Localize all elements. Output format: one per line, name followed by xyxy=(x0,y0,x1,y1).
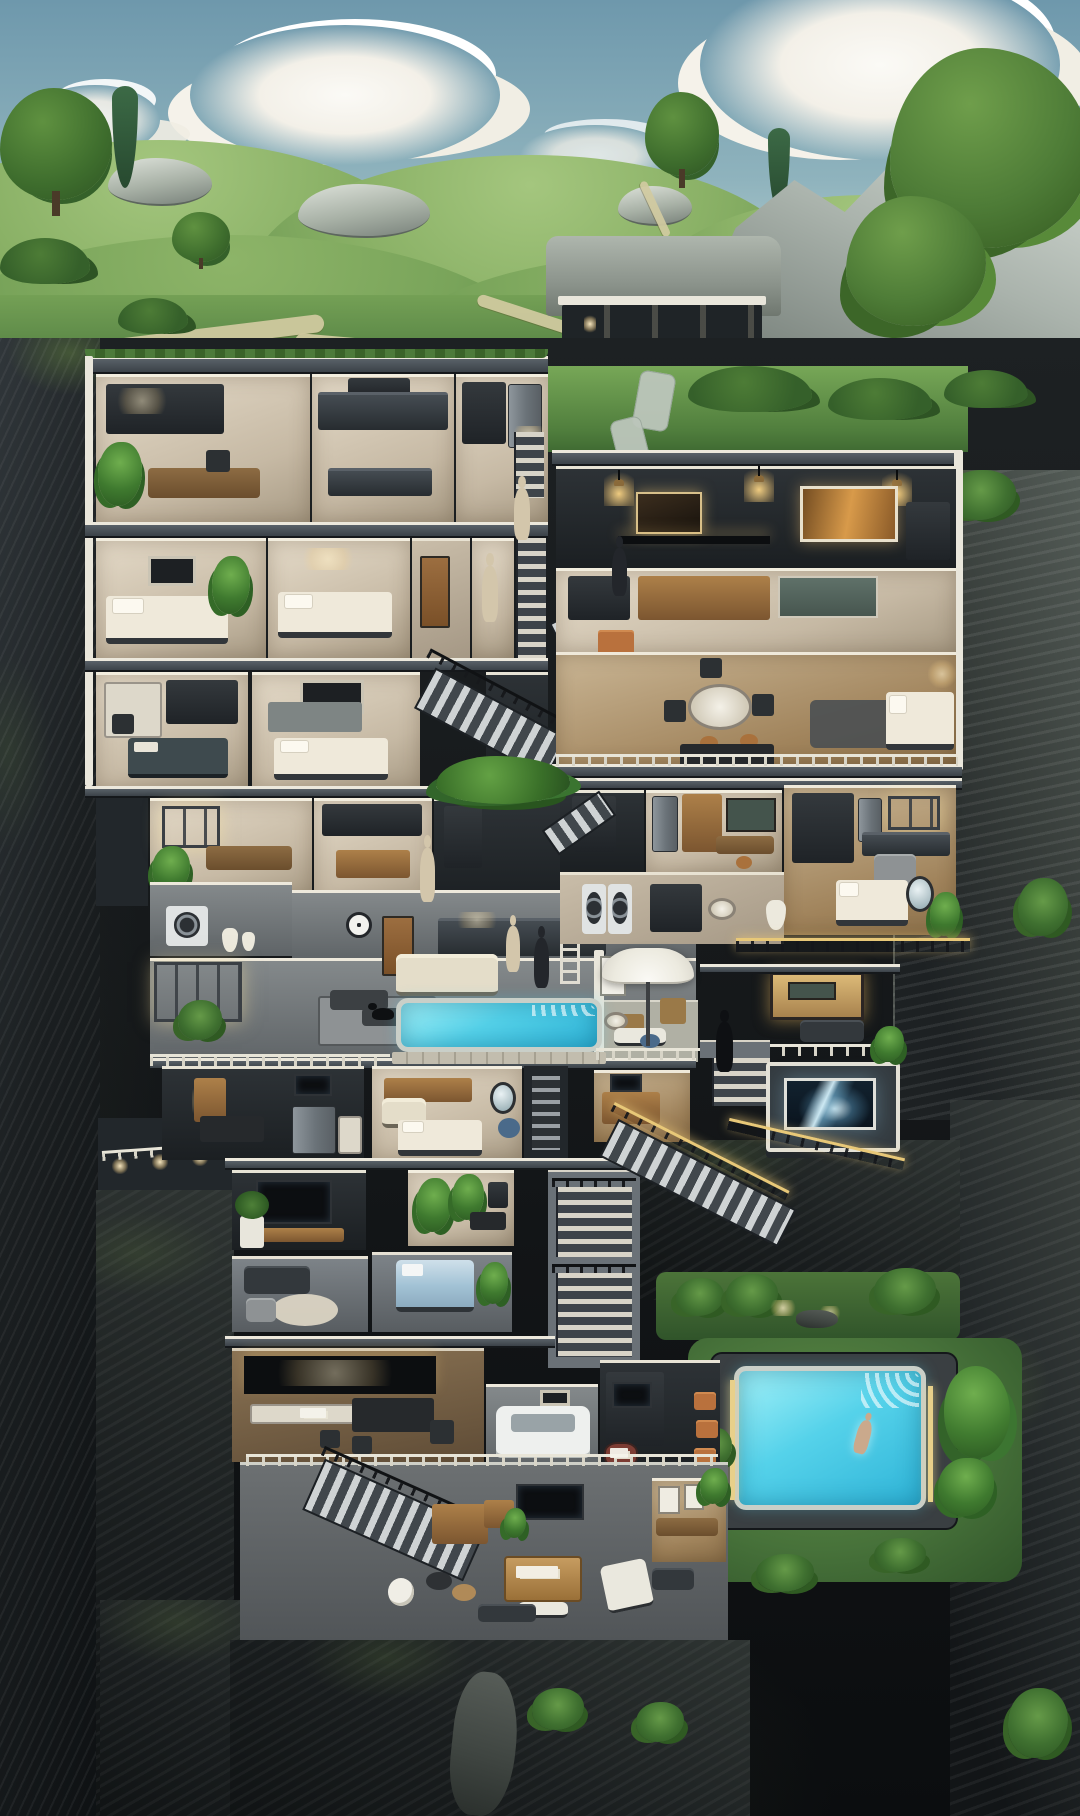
suite-kitchwall xyxy=(792,793,854,863)
nook-sofa xyxy=(800,1020,864,1042)
stair-person xyxy=(514,488,530,540)
pantry1-panel xyxy=(462,382,506,444)
hall-rail xyxy=(150,1054,390,1066)
studio-desk xyxy=(716,836,774,854)
stairhall-f6-steps xyxy=(532,1076,560,1150)
library-shelf-glow xyxy=(260,1360,410,1386)
hall-clock xyxy=(346,912,372,938)
hall-person-woman xyxy=(506,926,520,972)
terrace-pouf-2 xyxy=(452,1584,476,1601)
pool-indoor-deck xyxy=(392,1052,606,1064)
hallb-rail xyxy=(736,938,970,952)
dining-table-round xyxy=(688,684,752,730)
illustration-canvas xyxy=(0,0,1080,1816)
grandstair-flight-1 xyxy=(556,1187,632,1257)
terrace-pouf xyxy=(640,1034,660,1048)
terrace-main-rail xyxy=(246,1454,718,1466)
umbrella-pole xyxy=(646,982,650,1046)
terrace-chair-1 xyxy=(660,998,686,1024)
hall-sofa xyxy=(396,954,498,996)
floor8-slab xyxy=(225,1336,555,1348)
den-microwave xyxy=(294,1074,332,1096)
dining-bed xyxy=(886,692,954,750)
grandstair-rail-2 xyxy=(552,1264,636,1273)
terrace-tv xyxy=(516,1484,584,1520)
rightwing-balcony xyxy=(552,764,962,778)
kitchen1-counter xyxy=(318,392,448,430)
study1-glow xyxy=(112,388,172,414)
bedroom5-bed xyxy=(398,1120,482,1156)
surface-door-light xyxy=(584,314,596,334)
leftwing-edge xyxy=(85,356,93,786)
library-chair xyxy=(430,1420,454,1444)
office2-desk xyxy=(206,846,292,870)
terrace-umbrella xyxy=(602,948,694,984)
hallb-washer-1 xyxy=(582,884,606,934)
bath1-door xyxy=(420,556,450,628)
garage-car xyxy=(496,1406,590,1458)
suite-bed xyxy=(836,880,908,926)
floor7-slab xyxy=(225,1158,645,1170)
bar-tv xyxy=(612,1382,652,1408)
bedroom3-bed xyxy=(274,738,388,780)
hallf4-person xyxy=(420,848,435,902)
tree-left xyxy=(0,88,112,200)
bedrug-armchair xyxy=(246,1298,276,1322)
garden-stone xyxy=(796,1310,838,1328)
terrace-chest xyxy=(432,1504,488,1544)
nook2-desk xyxy=(656,1518,718,1536)
mediacab-tv xyxy=(610,1074,642,1092)
wardrobe-bed xyxy=(128,738,228,778)
pool-indoor xyxy=(396,998,602,1052)
nook-board xyxy=(788,982,836,1000)
tree-center xyxy=(172,212,230,262)
studio-board xyxy=(726,798,776,832)
bedroom1-bed xyxy=(106,596,228,644)
stair3-landing xyxy=(700,1040,770,1058)
study1-desk xyxy=(148,468,260,498)
kitchen1-island xyxy=(328,468,432,496)
rightwing-roof xyxy=(552,450,962,466)
stair-center xyxy=(516,538,546,658)
suite-window xyxy=(888,796,940,830)
library-stool-1 xyxy=(320,1430,340,1448)
bedblue-bed xyxy=(396,1260,474,1312)
leftwing-roof xyxy=(85,356,548,374)
bar-paper xyxy=(610,1448,628,1458)
loungemid-glasscab xyxy=(778,576,878,618)
chaise-cushion-1 xyxy=(330,990,388,1010)
garage-frame xyxy=(540,1390,570,1406)
bedrug-sofa xyxy=(244,1266,310,1294)
media-pendant-1 xyxy=(604,470,634,506)
tv-screen xyxy=(784,1078,876,1130)
grandstair-rail-1 xyxy=(552,1178,636,1187)
terrace-lowchair xyxy=(478,1604,536,1622)
leftwing-floor-3 xyxy=(85,658,548,672)
media-pendant-2 xyxy=(744,466,774,502)
tvroom-plant xyxy=(240,1216,264,1248)
stair3-person xyxy=(716,1022,733,1072)
surface-house-roof xyxy=(558,296,766,305)
terrace-kettle xyxy=(388,1578,414,1606)
den-cart xyxy=(338,1116,362,1154)
media-screen xyxy=(800,486,898,542)
grandstair-flight-2 xyxy=(556,1273,632,1357)
leftwing-floor-2 xyxy=(85,522,548,538)
tree-back-center xyxy=(645,92,719,176)
library-stool-2 xyxy=(352,1436,372,1454)
bedroom2-glow xyxy=(296,548,360,570)
bedroom2-bed xyxy=(278,592,392,638)
terrace-lounger-1 xyxy=(652,1568,694,1590)
terrace-pouf-1 xyxy=(426,1572,452,1590)
media-frame-1 xyxy=(636,492,702,534)
lounge2-recliner xyxy=(600,1558,655,1615)
bedroom5-chair xyxy=(498,1118,520,1138)
bedrug-rug xyxy=(272,1294,338,1326)
bedroom1-art xyxy=(148,556,196,586)
midlanding-person xyxy=(612,548,627,596)
hallb-table xyxy=(708,898,736,920)
dining-chair-3 xyxy=(700,658,722,678)
bedroom3-sideboard xyxy=(268,702,362,732)
terrace-rail xyxy=(596,1048,700,1060)
laundry-washer xyxy=(166,906,208,946)
wardrobe-chair xyxy=(112,714,134,734)
hall-cat xyxy=(372,1008,394,1020)
hall-person-man xyxy=(534,938,549,988)
wardrobe-shelf xyxy=(166,680,238,724)
library-papers xyxy=(300,1408,326,1418)
nook2-frame-1 xyxy=(658,1486,680,1514)
suite-counter xyxy=(862,832,950,856)
studio-stool xyxy=(736,856,752,869)
walkway-lamp-1 xyxy=(112,1158,128,1174)
shower1-person xyxy=(482,566,498,622)
hallb-dresser xyxy=(650,884,702,932)
dressing-cabinet xyxy=(322,804,422,836)
pool2-plant-1 xyxy=(944,1366,1010,1458)
dining-chair-2 xyxy=(752,694,774,716)
leftwing-roof-fringe xyxy=(85,349,548,358)
dining-floorlamp xyxy=(928,660,956,688)
nook-slab xyxy=(700,964,900,974)
dining-rug xyxy=(810,700,896,748)
studio-drawers xyxy=(652,796,678,852)
hallb-washer-2 xyxy=(608,884,632,934)
loungemid-cabinets xyxy=(638,576,770,620)
plants-desk xyxy=(470,1212,506,1230)
garden-glow-1 xyxy=(768,1300,798,1316)
bar-chair-2 xyxy=(696,1420,718,1438)
office2-window xyxy=(162,806,220,848)
bar-chair-1 xyxy=(694,1392,716,1410)
dressing-dresser xyxy=(336,850,410,878)
media-shelf xyxy=(618,536,770,544)
bedroom5-mirror xyxy=(490,1082,516,1114)
plants-bin xyxy=(488,1182,508,1208)
library-table xyxy=(352,1398,434,1432)
media-cabinet xyxy=(906,502,950,560)
hallf4-fridge xyxy=(444,806,482,868)
pool-outdoor xyxy=(734,1366,926,1510)
void-f4-left xyxy=(96,798,148,906)
pool2-glow-right xyxy=(928,1386,933,1502)
hall-kitchen-glow xyxy=(452,912,502,928)
den-desk xyxy=(200,1116,264,1142)
den-range xyxy=(292,1106,336,1154)
terrace-dining-table xyxy=(504,1556,582,1602)
rightwing-balcony-rail xyxy=(556,754,958,766)
terrace-dishes xyxy=(516,1566,558,1578)
tvroom-console xyxy=(250,1228,344,1242)
dining-chair-1 xyxy=(664,700,686,722)
study1-chair xyxy=(206,450,230,472)
